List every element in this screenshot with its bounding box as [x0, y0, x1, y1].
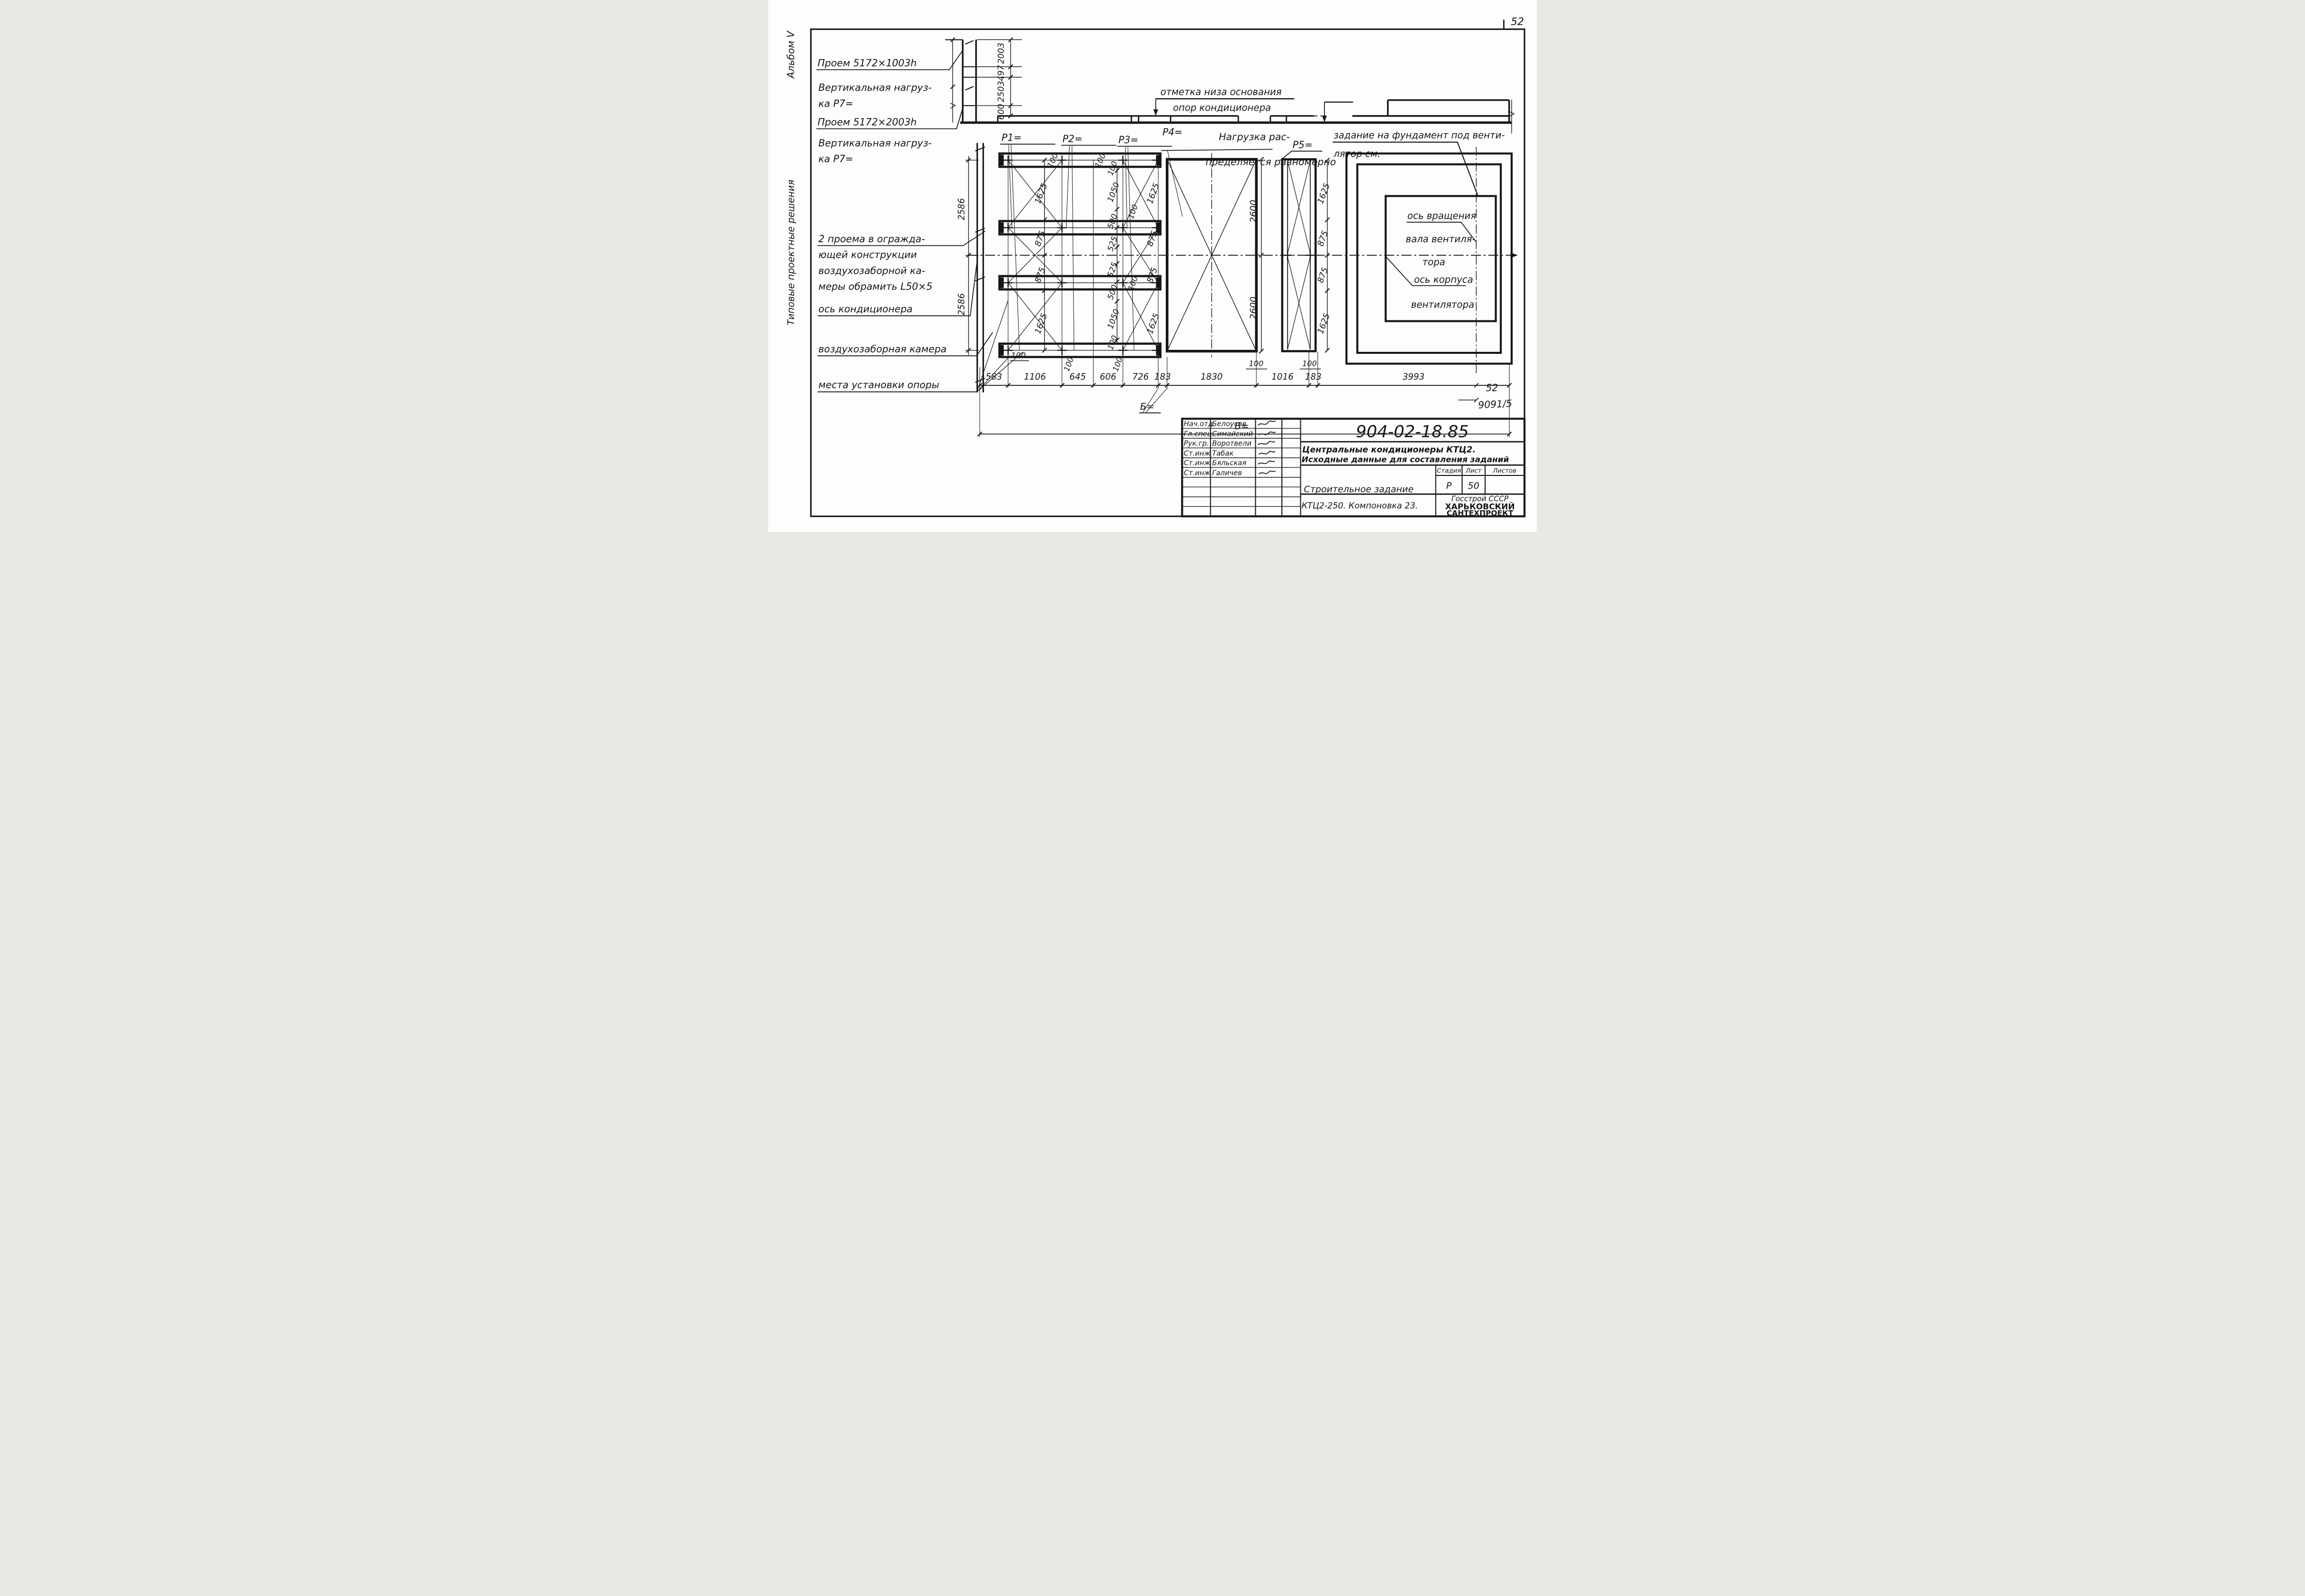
- bdim-8: 183: [1305, 372, 1321, 382]
- elevation-dim-chain: 2003 497 2503 600: [977, 38, 1022, 120]
- note-supports: места установки опоры: [818, 379, 940, 391]
- chainD-2: 875: [1315, 266, 1330, 284]
- note-opening2: Проем 5172×2003h: [817, 117, 916, 128]
- tb-name-5: Галичев: [1212, 469, 1242, 477]
- bdim-2: 645: [1069, 372, 1086, 382]
- dim-chain-c: 1625 875 875 1625: [1145, 182, 1161, 335]
- elev-mark1: отметка низа основания: [1160, 87, 1281, 98]
- title-block: Нач.отд Белоусов Гл.спец. Симайский Рук.…: [1182, 419, 1525, 518]
- fan-body2: вентилятора: [1411, 300, 1474, 310]
- fan-slab-elevation: [1352, 100, 1509, 123]
- note-chamber: воздухозаборная камера: [818, 343, 947, 355]
- bdim-1: 1106: [1024, 372, 1046, 382]
- p3-label: Р3=: [1118, 134, 1138, 146]
- p1-label: Р1=: [1002, 132, 1022, 144]
- sheet-value: 50: [1468, 481, 1480, 491]
- album-label: Альбом V: [785, 30, 797, 79]
- note-load1a: Вертикальная нагруз-: [818, 82, 932, 94]
- note-axis: ось кондиционера: [818, 303, 912, 315]
- stage-value: Р: [1446, 481, 1452, 491]
- fan-foundation: ось вращения вала вентиля- тора ось корп…: [1346, 147, 1518, 375]
- p2-label: Р2=: [1063, 133, 1083, 145]
- sheets-label: Листов: [1492, 467, 1516, 474]
- note-frame4: меры обрамить L50×5: [818, 281, 933, 292]
- tb-name-0: Белоусов: [1212, 420, 1247, 428]
- intake-wall: [975, 143, 985, 392]
- doc-type: Строительное задание: [1304, 484, 1414, 494]
- elev-dim-2503: 2503: [997, 81, 1006, 102]
- tb-role-3: Ст.инж: [1184, 449, 1211, 457]
- tb-name-2: Воротвели: [1212, 440, 1252, 448]
- fan-axis2: вала вентиля-: [1406, 234, 1476, 245]
- small100-2: 100: [1111, 356, 1125, 373]
- fan-axis1: ось вращения: [1408, 211, 1476, 221]
- note-load2b: ка Р7=: [818, 153, 853, 165]
- wall-dim-chain: 2586 2586: [957, 156, 979, 355]
- sheet-label: Лист: [1465, 467, 1482, 474]
- p4-label: Р4=: [1162, 127, 1182, 138]
- bdim-0: 583: [986, 372, 1002, 382]
- dim-2600-1: 2600: [1248, 200, 1259, 223]
- doc-title-1: Центральные кондиционеры КТЦ2.: [1302, 445, 1476, 454]
- wall-dim-2: 2586: [957, 293, 967, 315]
- bdim-9: 3993: [1403, 372, 1425, 382]
- small100-1: 100: [1062, 356, 1076, 373]
- opening-notes: Проем 5172×1003h Вертикальная нагруз- ка…: [816, 51, 963, 165]
- note-load1b: ка Р7=: [818, 98, 853, 109]
- level-mark-flag: отметка низа основания опор кондиционера: [1153, 87, 1294, 116]
- fan-body1: ось корпуса: [1414, 275, 1473, 285]
- p5-label: Р5=: [1292, 139, 1312, 151]
- chainC-3: 1625: [1145, 312, 1161, 335]
- fan-axis3: тора: [1423, 257, 1446, 268]
- chainC-0: 1625: [1145, 182, 1161, 205]
- small100-4: 100: [1302, 359, 1317, 368]
- chainB-x0: 100: [1126, 203, 1140, 220]
- note-frame2: ющей конструкции: [818, 249, 917, 261]
- tb-name-4: Бяльская: [1212, 459, 1246, 467]
- elev-dim-497: 497: [997, 65, 1006, 81]
- elevation-view: 2003 497 2503 600 отметка низа основания: [945, 38, 1514, 134]
- tb-role-5: Ст.инж: [1184, 469, 1211, 477]
- plan-view: 2586 2586: [957, 127, 1518, 437]
- bdim-4: 726: [1132, 372, 1149, 382]
- inventory-number: 9091/5: [1478, 397, 1512, 411]
- series-label: Типовые проектные решения: [786, 180, 797, 325]
- chainB-1: 1050: [1105, 181, 1121, 204]
- dim-2600-2: 2600: [1248, 297, 1259, 320]
- small-offset-dims: 100 100 100 100 100: [1010, 351, 1321, 373]
- fan-task2: лятор см.: [1333, 149, 1380, 159]
- chainC-1: 875: [1145, 229, 1160, 247]
- chainD-0: 1625: [1315, 182, 1331, 205]
- corner-number: 52: [1486, 382, 1498, 394]
- tb-role-2: Рук.гр.: [1184, 440, 1209, 448]
- chainA-2: 875: [1033, 266, 1048, 284]
- chainA-3: 1625: [1033, 312, 1049, 335]
- tb-name-3: Табак: [1212, 449, 1234, 457]
- elev-dim-2003: 2003: [997, 43, 1006, 64]
- doc-title-2: Исходные данные для составления заданий: [1301, 454, 1509, 464]
- drawing-sheet: 52 Альбом V Типовые проектные решения Пр…: [768, 0, 1537, 532]
- level-mark-flag-2: [1322, 102, 1353, 122]
- bracing-lines: [1008, 160, 1158, 350]
- page-number: 52: [1511, 16, 1524, 28]
- bdim-6: 1830: [1201, 372, 1223, 382]
- chainD-1: 875: [1315, 229, 1330, 247]
- tb-name-1: Симайский: [1212, 430, 1253, 438]
- note-load2a: Вертикальная нагруз-: [818, 138, 932, 149]
- note-frame3: воздухозаборной ка-: [818, 265, 925, 276]
- elev-mark2: опор кондиционера: [1173, 103, 1271, 114]
- org-line-3: САНТЕХПРОЕКТ: [1447, 509, 1513, 518]
- chainD-3: 1625: [1315, 312, 1331, 335]
- margin-texts: Альбом V Типовые проектные решения: [785, 30, 797, 325]
- config-label: КТЦ2-250. Компоновка 23.: [1301, 501, 1418, 510]
- note-frame1: 2 проема в огражда-: [818, 233, 925, 245]
- tb-role-1: Гл.спец.: [1184, 430, 1214, 438]
- bdim-3: 606: [1100, 372, 1116, 382]
- bdim-5: 183: [1154, 372, 1171, 382]
- tb-role-4: Ст.инж: [1184, 459, 1211, 467]
- load-note1: Нагрузка рас-: [1219, 131, 1290, 143]
- small100-0: 100: [1011, 351, 1026, 360]
- fan-task1: задание на фундамент под венти-: [1333, 131, 1505, 141]
- stage-label: Стадия: [1437, 467, 1461, 474]
- doc-number: 904-02-18.85: [1356, 421, 1469, 441]
- tb-role-0: Нач.отд: [1184, 420, 1213, 428]
- wall-dim-1: 2586: [957, 198, 967, 220]
- chainB-7: 100: [1106, 334, 1119, 351]
- note-opening1: Проем 5172×1003h: [817, 58, 916, 69]
- chainB-6: 1050: [1105, 308, 1121, 330]
- bdim-7: 1016: [1271, 372, 1293, 382]
